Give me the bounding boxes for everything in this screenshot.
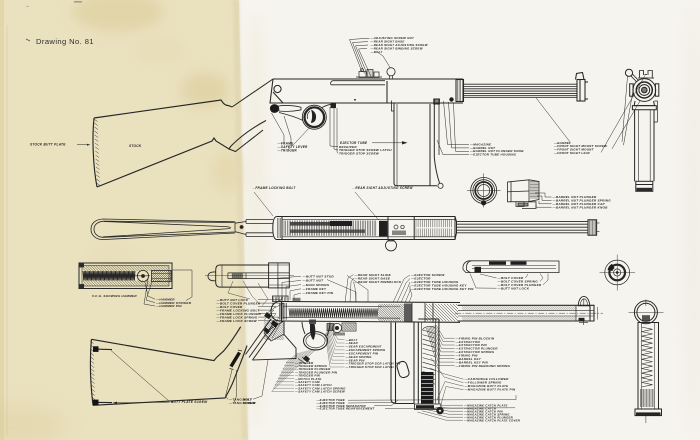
- svg-text:—HAMMER PIN: —HAMMER PIN: [155, 304, 182, 308]
- svg-text:←REAR SIGHT ADJUSTING SCREW: ←REAR SIGHT ADJUSTING SCREW: [352, 186, 414, 190]
- svg-text:—TRIGGER STOP SCR LATCH: —TRIGGER STOP SCR LATCH: [345, 365, 395, 369]
- svg-text:STOCK BUTT PLATE: STOCK BUTT PLATE: [30, 143, 66, 147]
- svg-text:—SAFETY CAM LATCH SCREW: —SAFETY CAM LATCH SCREW: [294, 390, 345, 394]
- svg-text:—MAGAZINE BUTT PLATE PIN: —MAGAZINE BUTT PLATE PIN: [464, 388, 516, 392]
- svg-text:—EJECTOR TUBE HOUSING KEY PIN: —EJECTOR TUBE HOUSING KEY PIN: [410, 287, 474, 291]
- svg-text:TRIGGER STOP SCREW: TRIGGER STOP SCREW: [339, 151, 380, 155]
- svg-text:—FRONT SIGHT LEAF: —FRONT SIGHT LEAF: [553, 151, 590, 155]
- svg-text:—FRAME LOCK SCREW: —FRAME LOCK SCREW: [216, 319, 258, 323]
- svg-text:—EJECTOR TUBE HOUSING: —EJECTOR TUBE HOUSING: [469, 153, 517, 157]
- svg-text:STOCK: STOCK: [129, 144, 142, 148]
- svg-text:—BUTT NUT LOCK: —BUTT NUT LOCK: [497, 287, 530, 291]
- svg-text:—BOLT: —BOLT: [370, 50, 383, 54]
- svg-text:BUTT PLATE SCREW: BUTT PLATE SCREW: [171, 400, 208, 404]
- svg-text:←FRAME LOCKING BOLT: ←FRAME LOCKING BOLT: [252, 186, 296, 190]
- svg-text:Drawing No. 81: Drawing No. 81: [36, 37, 94, 46]
- svg-text:—FIRING PIN REBOUND SPRING: —FIRING PIN REBOUND SPRING: [455, 364, 511, 368]
- svg-text:V.C.H. SHOWING HAMMER: V.C.H. SHOWING HAMMER: [92, 294, 137, 298]
- svg-text:SCREW: SCREW: [243, 401, 257, 405]
- svg-text:—FRAME KEY PIN: —FRAME KEY PIN: [302, 291, 334, 295]
- svg-text:—MAGAZINE CATCH PLATE COVER: —MAGAZINE CATCH PLATE COVER: [463, 418, 521, 422]
- svg-text:—EJECTOR TUBE REINFORCEMENT: —EJECTOR TUBE REINFORCEMENT: [316, 407, 375, 411]
- svg-text:—REAR SIGHT BINDBLOCK: —REAR SIGHT BINDBLOCK: [354, 280, 402, 284]
- svg-text:—TRIGGER: —TRIGGER: [277, 148, 298, 152]
- svg-text:—BARREL NUT PLUNGER KNOB: —BARREL NUT PLUNGER KNOB: [552, 205, 609, 209]
